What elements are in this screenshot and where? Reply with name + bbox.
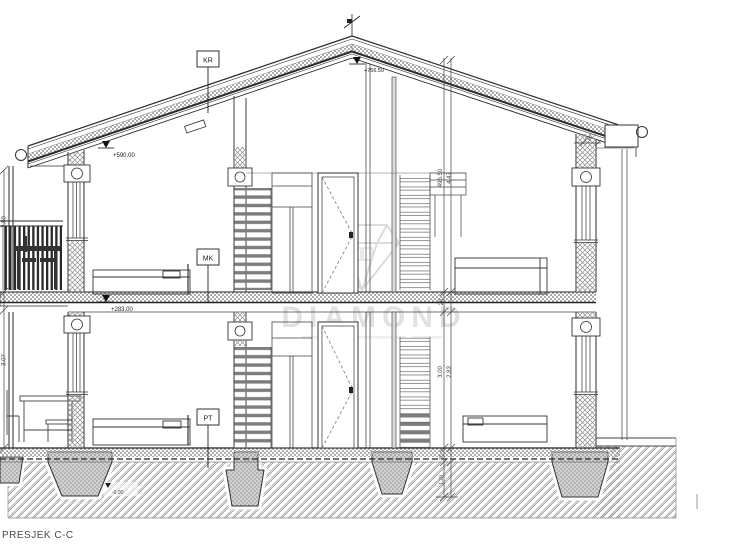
stairs-left-upper: [234, 188, 271, 290]
dim-eave-offset: 63: [585, 136, 591, 142]
door-lower: [318, 322, 358, 448]
dim-slab-thickness: 20: [439, 298, 445, 305]
dim-foundation-width: 1.20: [439, 475, 445, 485]
label-floor-text: MK: [203, 256, 214, 263]
label-ground-text: PT: [204, 416, 214, 423]
label-roof-text: KR: [203, 58, 213, 65]
stairs-left-lower: [234, 347, 271, 448]
elevation-ridge-value: +756.50: [364, 68, 384, 74]
dim-left-upper: 2.80: [2, 216, 8, 228]
dim-clear-height: 2.83: [447, 366, 453, 378]
door-upper: [318, 173, 358, 293]
dim-right-total: 496.50: [438, 168, 444, 187]
elevation-footing: -0.90: [104, 482, 138, 496]
ground-foundation: [0, 438, 697, 518]
section-drawing: DIAMOND: [0, 0, 740, 550]
elevation-eave-left-value: +590.00: [113, 153, 136, 159]
stairs-right-upper: [400, 175, 430, 290]
elevation-first-floor-value: +283.00: [111, 307, 134, 313]
dim-left-lower: 3.07: [2, 354, 8, 366]
dim-foundation-depth: 35: [439, 454, 445, 460]
dim-right-height: 4.47: [447, 172, 453, 184]
drawing-title: PRESJEK C-C: [2, 530, 74, 541]
elevation-footing-value: -0.90: [112, 490, 124, 496]
dim-storey-height: 3.00: [438, 366, 444, 378]
